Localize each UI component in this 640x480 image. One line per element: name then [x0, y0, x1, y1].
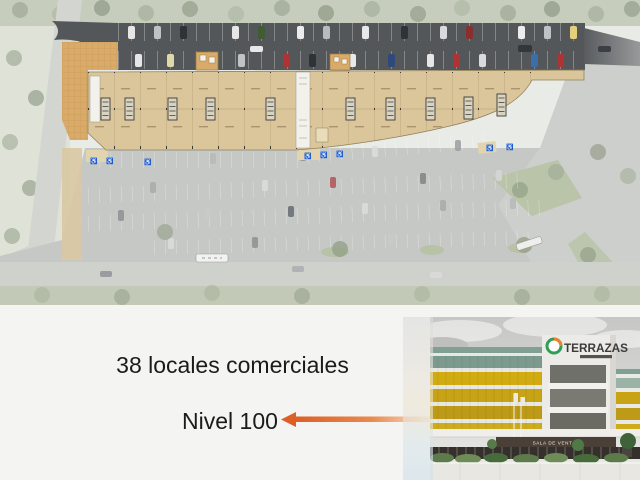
- facade-right: [614, 369, 640, 435]
- svg-text:♿: ♿: [304, 152, 312, 160]
- svg-text:♿: ♿: [506, 143, 514, 151]
- svg-text:♿: ♿: [336, 150, 344, 158]
- svg-text:♿: ♿: [90, 157, 98, 165]
- logo-subtext-bar: [580, 355, 612, 358]
- site-plan: ♿♿♿ ♿♿♿ ♿♿: [0, 0, 640, 312]
- logo-text: TERRAZAS: [564, 341, 628, 355]
- photo-fade-edge: [403, 317, 433, 480]
- svg-text:♿: ♿: [320, 151, 328, 159]
- stair-core-left: [90, 76, 100, 122]
- front-wall: [430, 463, 640, 480]
- nivel-caption: Nivel 100: [150, 408, 310, 435]
- locales-caption: 38 locales comerciales: [115, 352, 350, 379]
- slide: ♿♿♿ ♿♿♿ ♿♿: [0, 0, 640, 480]
- service-room: [316, 128, 328, 142]
- svg-text:♿: ♿: [144, 158, 152, 166]
- front-road: [0, 262, 640, 286]
- bottom-green-band: [0, 286, 640, 305]
- central-atrium: [296, 72, 310, 148]
- svg-text:♿: ♿: [486, 144, 494, 152]
- building-photo: TERRAZAS SALA DE VENTAS: [430, 317, 640, 480]
- facade-left: [430, 347, 548, 435]
- svg-text:♿: ♿: [106, 157, 114, 165]
